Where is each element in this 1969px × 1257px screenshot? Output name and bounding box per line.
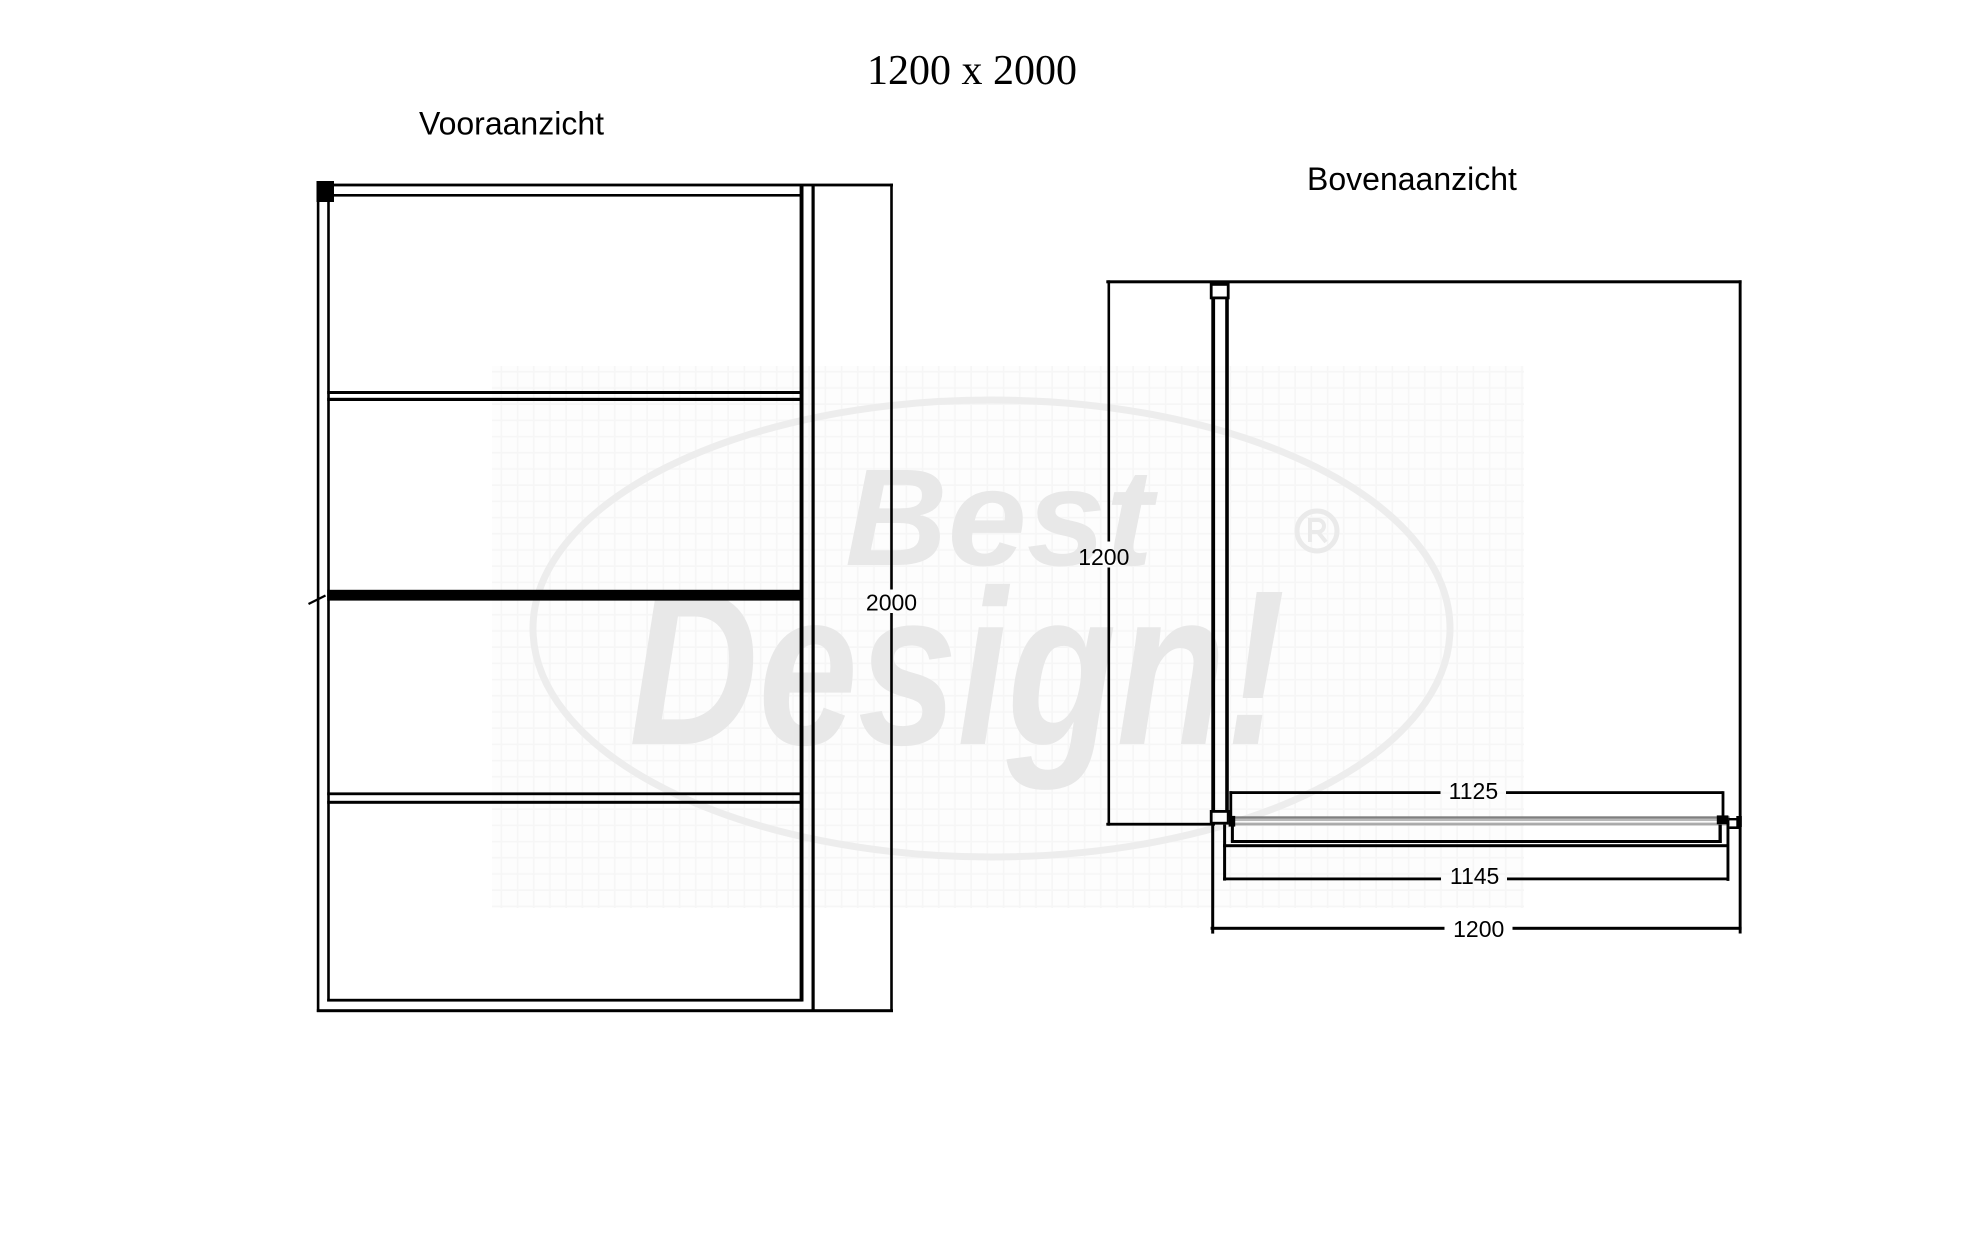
svg-text:1200: 1200 xyxy=(1453,916,1504,942)
svg-text:Bovenaanzicht: Bovenaanzicht xyxy=(1307,161,1517,197)
svg-text:1200 x 2000: 1200 x 2000 xyxy=(867,48,1077,94)
svg-text:Vooraanzicht: Vooraanzicht xyxy=(419,106,604,142)
svg-text:2000: 2000 xyxy=(866,589,917,615)
svg-text:1200: 1200 xyxy=(1078,544,1129,570)
svg-text:Design!: Design! xyxy=(629,544,1285,791)
svg-text:1125: 1125 xyxy=(1449,778,1498,804)
svg-text:1145: 1145 xyxy=(1450,863,1499,889)
